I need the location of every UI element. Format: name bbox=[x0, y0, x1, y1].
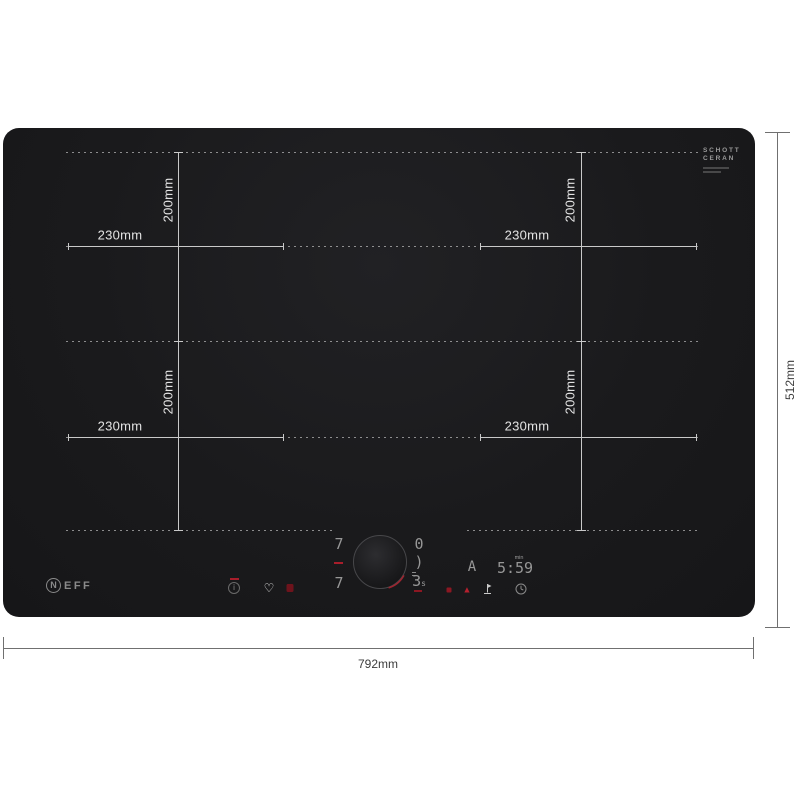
measure-end-tick bbox=[480, 434, 481, 441]
measure-end-tick bbox=[696, 243, 697, 250]
product-dimension-diagram: 230mm 230mm 230mm 230mm 200mm 200mm 200m… bbox=[0, 0, 800, 800]
zone-width-label: 230mm bbox=[98, 419, 143, 434]
zone-width-measure-line bbox=[68, 246, 284, 247]
measure-end-tick bbox=[174, 341, 183, 342]
zone-depth-label: 200mm bbox=[563, 178, 578, 223]
twistpad-control-knob[interactable] bbox=[353, 535, 407, 589]
glass-logo-fineprint bbox=[703, 167, 741, 173]
induction-hob-surface: 230mm 230mm 230mm 230mm 200mm 200mm 200m… bbox=[3, 128, 755, 617]
zone-depth-label: 200mm bbox=[161, 178, 176, 223]
info-active-indicator bbox=[230, 578, 239, 580]
info-icon[interactable]: i bbox=[228, 582, 240, 594]
right-zone-power-display: 0 bbox=[414, 535, 423, 553]
knob-power-arc bbox=[353, 535, 409, 591]
overall-width-label: 792mm bbox=[358, 657, 398, 671]
overall-width-dimension-line bbox=[3, 648, 754, 649]
neff-logo: N EFF bbox=[46, 578, 92, 593]
schott-ceran-line1: SCHOTT bbox=[703, 147, 741, 155]
zone-width-label: 230mm bbox=[98, 228, 143, 243]
dimension-end-cap bbox=[765, 132, 790, 133]
zone-depth-label: 200mm bbox=[161, 370, 176, 415]
zone-boundary-dotted-line bbox=[66, 341, 698, 342]
zone-width-measure-line bbox=[480, 246, 697, 247]
measure-end-tick bbox=[577, 152, 586, 153]
measure-end-tick bbox=[283, 243, 284, 250]
warming-triangle-icon[interactable]: ▲ bbox=[463, 586, 472, 595]
measure-end-tick bbox=[696, 434, 697, 441]
sensor-probe-icon[interactable] bbox=[482, 582, 493, 595]
zone-width-label: 230mm bbox=[505, 419, 550, 434]
left-zone-power-display: 7 bbox=[334, 574, 343, 592]
dimension-end-cap bbox=[3, 637, 4, 659]
dimension-end-cap bbox=[753, 637, 754, 659]
right-zone-power-display: 3s bbox=[412, 572, 426, 590]
favourite-heart-icon[interactable]: ♡ bbox=[264, 582, 275, 594]
measure-end-tick bbox=[283, 434, 284, 441]
schott-ceran-logo: SCHOTT CERAN bbox=[703, 147, 741, 173]
measure-end-tick bbox=[68, 243, 69, 250]
zone-boundary-dotted-line bbox=[66, 152, 698, 153]
function-indicator-icon bbox=[447, 588, 452, 593]
overall-depth-dimension-line bbox=[777, 132, 778, 627]
zone-width-measure-line bbox=[480, 437, 697, 438]
measure-end-tick bbox=[577, 341, 586, 342]
right-zone-move-indicator: ) bbox=[414, 553, 423, 571]
dimension-end-cap bbox=[765, 627, 790, 628]
right-zone-select-indicator bbox=[414, 590, 422, 592]
measure-end-tick bbox=[68, 434, 69, 441]
zone-depth-label: 200mm bbox=[563, 370, 578, 415]
measure-end-tick bbox=[174, 152, 183, 153]
left-zone-select-indicator bbox=[334, 562, 343, 564]
neff-logo-letters: EFF bbox=[64, 580, 92, 592]
measure-end-tick bbox=[577, 530, 586, 531]
left-zone-power-display: 7 bbox=[334, 535, 343, 553]
wipe-protection-icon[interactable] bbox=[287, 584, 294, 592]
overall-depth-label: 512mm bbox=[783, 360, 797, 400]
measure-end-tick bbox=[480, 243, 481, 250]
zone-width-measure-line bbox=[68, 437, 284, 438]
schott-ceran-line2: CERAN bbox=[703, 155, 741, 163]
zone-boundary-dotted-line bbox=[66, 530, 333, 531]
timer-value-display: 5:59 bbox=[497, 559, 533, 577]
zone-width-label: 230mm bbox=[505, 228, 550, 243]
timer-clock-icon[interactable] bbox=[515, 583, 527, 595]
measure-end-tick bbox=[174, 530, 183, 531]
timer-mode-display: A bbox=[468, 559, 476, 575]
neff-logo-emblem: N bbox=[46, 578, 61, 593]
seconds-unit: s bbox=[421, 579, 426, 588]
